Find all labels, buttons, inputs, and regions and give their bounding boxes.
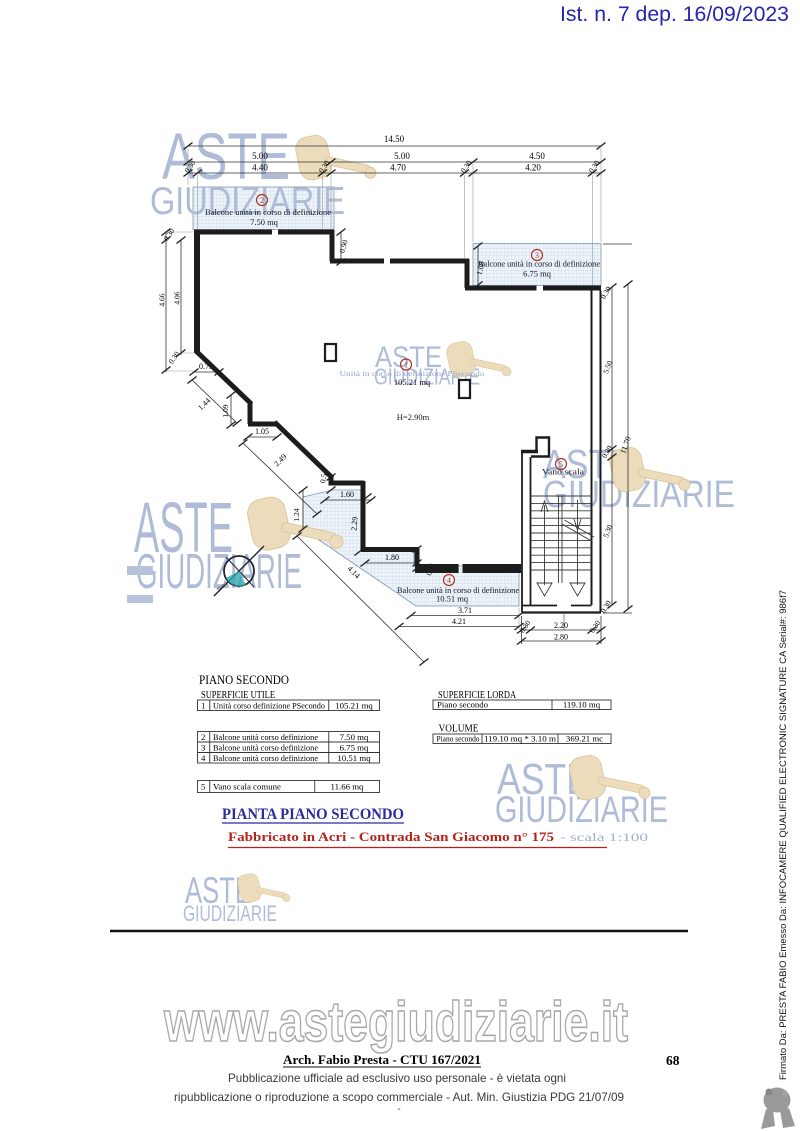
svg-text:1.24: 1.24 [292, 508, 301, 521]
svg-text:5: 5 [201, 782, 206, 792]
svg-text:4.21: 4.21 [452, 617, 466, 626]
svg-text:- scala 1:100: - scala 1:100 [560, 830, 648, 844]
svg-text:119.10 mq * 3.10 m: 119.10 mq * 3.10 m [484, 734, 556, 744]
svg-text:GIUDIZIARIE: GIUDIZIARIE [183, 901, 277, 926]
svg-text:3.71: 3.71 [458, 606, 472, 615]
svg-text:1.60: 1.60 [340, 490, 354, 499]
svg-text:Balcone unità corso definizion: Balcone unità corso definizione [213, 753, 318, 763]
svg-text:Pubblicazione ufficiale ad esc: Pubblicazione ufficiale ad esclusivo uso… [228, 1071, 566, 1085]
svg-text:4.06: 4.06 [173, 291, 182, 304]
svg-text:2: 2 [260, 196, 264, 205]
svg-text:11.66 mq: 11.66 mq [331, 782, 365, 792]
svg-text:Firmato Da: PRESTA FABIO Emess: Firmato Da: PRESTA FABIO Emesso Da: INFO… [778, 590, 789, 1080]
svg-text:10.51 mq: 10.51 mq [436, 594, 469, 604]
svg-text:2.20: 2.20 [554, 621, 568, 630]
svg-text:4.70: 4.70 [390, 163, 406, 173]
svg-text:Fabbricato in Acri - Contrada: Fabbricato in Acri - Contrada San Giacom… [228, 829, 555, 844]
svg-text:SUPERFICIE UTILE: SUPERFICIE UTILE [201, 690, 275, 701]
svg-text:14.50: 14.50 [384, 134, 405, 144]
svg-text:7.50 mq: 7.50 mq [250, 217, 279, 227]
svg-text:4: 4 [201, 753, 206, 763]
svg-text:105.21 mq: 105.21 mq [335, 701, 373, 711]
svg-text:PIANTA PIANO SECONDO: PIANTA PIANO SECONDO [222, 806, 404, 823]
svg-text:105.21 mq: 105.21 mq [394, 377, 431, 387]
svg-text:5.00: 5.00 [394, 151, 410, 161]
svg-text:Balcone unità corso definizion: Balcone unità corso definizione [213, 743, 318, 753]
svg-text:Piano secondo: Piano secondo [437, 700, 489, 710]
svg-text:2.80: 2.80 [554, 633, 568, 642]
svg-text:369.21 mc: 369.21 mc [566, 734, 603, 744]
svg-text:Arch. Fabio Presta - CTU 167/2: Arch. Fabio Presta - CTU 167/2021 [283, 1053, 481, 1067]
svg-text:Ist. n. 7 dep. 16/09/2023: Ist. n. 7 dep. 16/09/2023 [560, 3, 789, 26]
svg-text:1.80: 1.80 [385, 553, 399, 562]
svg-text:4.50: 4.50 [529, 151, 545, 161]
svg-text:Piano secondo: Piano secondo [437, 734, 480, 744]
svg-text:1: 1 [201, 701, 205, 711]
svg-text:1.05: 1.05 [255, 427, 269, 436]
svg-text:Balcone unità in corso di defi: Balcone unità in corso di definizione [478, 259, 600, 269]
svg-text:119.10 mq: 119.10 mq [563, 700, 601, 710]
svg-text:3: 3 [201, 743, 206, 753]
svg-text:4.66: 4.66 [158, 293, 167, 306]
svg-text:Vano scala comune: Vano scala comune [213, 782, 281, 792]
svg-text:1: 1 [404, 361, 408, 370]
svg-text:68: 68 [666, 1053, 680, 1068]
svg-text:ripubblicazione o riproduzione: ripubblicazione o riproduzione a scopo c… [174, 1090, 624, 1104]
svg-text:7.50 mq: 7.50 mq [340, 732, 369, 742]
svg-text:6.75 mq: 6.75 mq [340, 743, 369, 753]
svg-text:-: - [397, 1104, 400, 1115]
svg-text:6.75 mq: 6.75 mq [523, 269, 552, 279]
svg-text:PIANO SECONDO: PIANO SECONDO [199, 672, 289, 687]
svg-text:1.09: 1.09 [221, 404, 230, 417]
svg-text:H=2.90m: H=2.90m [397, 412, 430, 422]
svg-text:2.29: 2.29 [349, 516, 359, 531]
svg-text:10.51 mq: 10.51 mq [337, 753, 371, 763]
svg-text:4.20: 4.20 [525, 163, 541, 173]
svg-text:Balcone unità corso definizion: Balcone unità corso definizione [213, 732, 318, 742]
svg-text:4.40: 4.40 [252, 163, 268, 173]
svg-text:Balcone unità in corso di defi: Balcone unità in corso di definizione [205, 207, 331, 217]
svg-text:Vano scala: Vano scala [542, 467, 584, 477]
svg-text:5.00: 5.00 [252, 151, 268, 161]
svg-text:4: 4 [447, 576, 451, 585]
svg-text:2: 2 [201, 732, 205, 742]
svg-text:Unità corso definizione PSecon: Unità corso definizione PSecondo [213, 701, 326, 711]
svg-text:www.astegiudiziarie.it: www.astegiudiziarie.it [163, 990, 628, 1054]
